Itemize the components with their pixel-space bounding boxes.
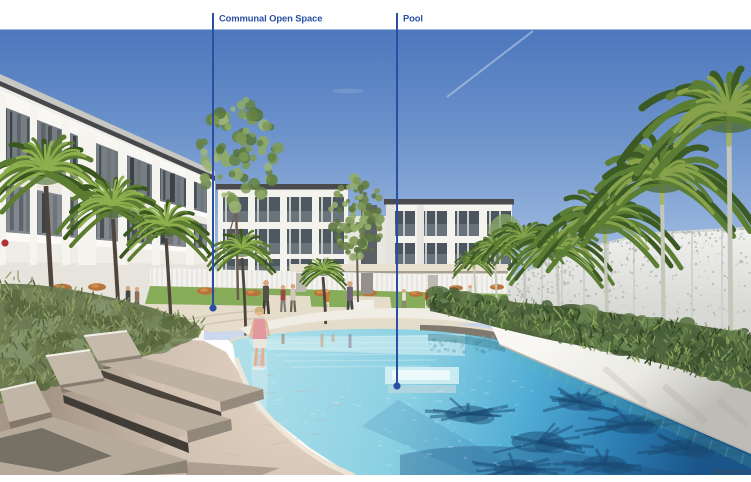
- svg-text:artist impression: artist impression: [712, 470, 750, 476]
- svg-text:Pool: Pool: [403, 13, 423, 24]
- svg-text:Communal Open Space: Communal Open Space: [219, 13, 322, 24]
